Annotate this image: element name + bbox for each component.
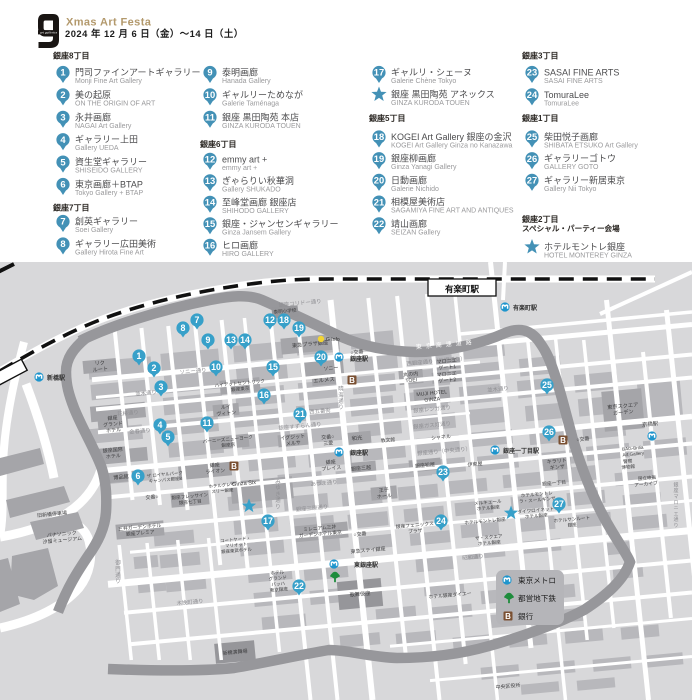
svg-text:東銀座駅: 東銀座駅 — [354, 561, 379, 569]
svg-text:Gallery Nii Tokyo: Gallery Nii Tokyo — [544, 186, 596, 193]
svg-text:り: り — [115, 578, 120, 585]
svg-text:SAGAMIYA FINE ART AND ANTIQUES: SAGAMIYA FINE ART AND ANTIQUES — [391, 208, 514, 215]
svg-text:5: 5 — [166, 432, 171, 442]
svg-text:1: 1 — [60, 67, 65, 78]
svg-text:23: 23 — [438, 467, 448, 477]
svg-text:Soei Gallery: Soei Gallery — [75, 227, 114, 234]
svg-text:銀座5丁目: 銀座5丁目 — [368, 113, 405, 123]
svg-text:ぎゃらりい秋華洞: ぎゃらりい秋華洞 — [222, 175, 294, 186]
svg-text:り: り — [275, 503, 280, 510]
svg-text:26: 26 — [544, 427, 554, 437]
svg-text:emmy art +: emmy art + — [222, 165, 257, 172]
svg-text:SHIHODO GALLERY: SHIHODO GALLERY — [222, 208, 289, 215]
svg-text:22: 22 — [374, 218, 384, 229]
svg-text:B: B — [560, 436, 566, 445]
svg-text:都営地下鉄: 都営地下鉄 — [518, 593, 556, 603]
svg-text:G Info: G Info — [326, 337, 340, 343]
svg-text:KOGEI Art Gallery 銀座の金沢: KOGEI Art Gallery 銀座の金沢 — [391, 131, 512, 142]
svg-text:12: 12 — [265, 315, 275, 325]
svg-text:HOTEL MONTEREY GINZA: HOTEL MONTEREY GINZA — [544, 253, 632, 260]
svg-text:10: 10 — [205, 89, 215, 100]
svg-text:通: 通 — [115, 571, 121, 579]
svg-text:GALLERY GOTO: GALLERY GOTO — [544, 164, 599, 171]
svg-text:門: 門 — [115, 566, 120, 573]
svg-text:み: み — [275, 479, 281, 486]
svg-text:17: 17 — [263, 516, 273, 526]
svg-text:14: 14 — [240, 335, 250, 345]
svg-text:KOGEI Art Gallery Ginza no Kan: KOGEI Art Gallery Ginza no Kanazawa — [391, 143, 512, 150]
svg-text:泰明画廊: 泰明画廊 — [222, 67, 258, 78]
svg-text:art galleries: art galleries — [40, 31, 58, 35]
svg-text:27: 27 — [527, 175, 537, 186]
svg-text:Monji Fine Art Gallery: Monji Fine Art Gallery — [75, 78, 142, 85]
svg-text:4: 4 — [158, 420, 163, 430]
svg-text:19: 19 — [294, 323, 304, 333]
svg-text:新橋駅: 新橋駅 — [47, 374, 66, 382]
svg-text:創英ギャラリー: 創英ギャラリー — [75, 216, 138, 227]
svg-text:TomuraLee: TomuraLee — [544, 90, 589, 100]
svg-text:4: 4 — [60, 134, 66, 145]
svg-text:銀座7丁目: 銀座7丁目 — [52, 203, 89, 213]
svg-text:25: 25 — [542, 380, 552, 390]
svg-text:銀座駅: 銀座駅 — [350, 355, 369, 363]
svg-text:Tokyo Gallery + BTAP: Tokyo Gallery + BTAP — [75, 190, 143, 197]
svg-text:12: 12 — [205, 154, 215, 165]
svg-text:Ginza Yanagi Gallery: Ginza Yanagi Gallery — [391, 164, 457, 171]
svg-text:B: B — [349, 376, 355, 385]
svg-text:ギャラリーゴトウ: ギャラリーゴトウ — [544, 153, 616, 164]
svg-text:銀座3丁目: 銀座3丁目 — [521, 51, 558, 61]
svg-text:11: 11 — [202, 418, 211, 428]
svg-text:門司ファインアートギャラリー: 門司ファインアートギャラリー — [75, 68, 200, 78]
svg-text:TOEI: TOEI — [405, 377, 417, 384]
svg-text:21: 21 — [374, 196, 384, 207]
svg-text:HIRO GALLERY: HIRO GALLERY — [222, 251, 274, 258]
svg-text:銀座6丁目: 銀座6丁目 — [199, 139, 236, 149]
svg-text:8: 8 — [181, 323, 186, 333]
svg-text:13: 13 — [226, 335, 236, 345]
svg-text:20: 20 — [316, 352, 326, 362]
svg-text:銀座1丁目: 銀座1丁目 — [521, 113, 558, 123]
svg-text:SASAI FINE ARTS: SASAI FINE ARTS — [544, 68, 619, 78]
svg-text:6: 6 — [136, 471, 141, 481]
svg-text:27: 27 — [554, 499, 564, 509]
svg-text:3: 3 — [159, 382, 164, 392]
svg-text:至峰堂画廊 銀座店: 至峰堂画廊 銀座店 — [222, 196, 297, 207]
svg-text:銀座駅: 銀座駅 — [350, 449, 369, 457]
svg-text:GINZA KURODA TOUEN: GINZA KURODA TOUEN — [222, 123, 301, 130]
svg-text:銀座 黒田陶苑 本店: 銀座 黒田陶苑 本店 — [222, 111, 299, 122]
svg-text:ギャラリー上田: ギャラリー上田 — [75, 135, 138, 145]
svg-text:SHIBATA ETSUKO Art Gallery: SHIBATA ETSUKO Art Gallery — [544, 143, 638, 150]
svg-text:ホテルモントレ銀座: ホテルモントレ銀座 — [544, 241, 625, 252]
svg-text:2: 2 — [60, 89, 65, 100]
svg-text:6: 6 — [60, 179, 65, 190]
svg-text:通: 通 — [275, 496, 281, 504]
svg-text:7: 7 — [195, 315, 200, 325]
svg-text:16: 16 — [205, 240, 215, 251]
svg-text:有楽町駅: 有楽町駅 — [513, 304, 538, 312]
svg-text:○交番: ○交番 — [353, 530, 367, 538]
svg-text:Gallery Hirota Fine Art: Gallery Hirota Fine Art — [75, 250, 144, 257]
svg-text:7: 7 — [60, 216, 65, 227]
svg-text:15: 15 — [205, 218, 215, 229]
svg-text:10: 10 — [211, 362, 221, 372]
svg-text:22: 22 — [294, 581, 304, 591]
svg-text:2: 2 — [152, 363, 157, 373]
svg-text:交番○: 交番○ — [145, 493, 159, 501]
svg-text:東京メトロ: 東京メトロ — [518, 575, 556, 585]
svg-text:24: 24 — [527, 89, 538, 100]
svg-text:11: 11 — [205, 112, 215, 123]
svg-text:8: 8 — [60, 238, 65, 249]
svg-text:B: B — [231, 462, 237, 471]
svg-text:永井画廊: 永井画廊 — [75, 111, 111, 122]
svg-text:9: 9 — [206, 335, 211, 345]
svg-text:20: 20 — [374, 175, 384, 186]
svg-text:き: き — [275, 491, 280, 498]
svg-text:14: 14 — [205, 197, 216, 208]
svg-text:海: 海 — [338, 391, 344, 399]
svg-text:り: り — [338, 404, 343, 411]
svg-text:銀座一丁目駅: 銀座一丁目駅 — [503, 447, 540, 455]
svg-text:柴田悦子画廊: 柴田悦子画廊 — [544, 131, 598, 142]
svg-text:19: 19 — [374, 153, 384, 164]
svg-text:銀座・ジャンセンギャラリー: 銀座・ジャンセンギャラリー — [222, 218, 339, 229]
svg-text:スペシャル・パーティー会場: スペシャル・パーティー会場 — [522, 223, 620, 233]
svg-text:御: 御 — [115, 559, 121, 567]
svg-text:Hanada Gallery: Hanada Gallery — [222, 78, 271, 85]
svg-text:13: 13 — [205, 175, 215, 186]
svg-text:15: 15 — [268, 362, 278, 372]
svg-text:B: B — [505, 612, 511, 621]
svg-text:Gallery UEDA: Gallery UEDA — [75, 145, 119, 152]
svg-text:emmy art +: emmy art + — [222, 154, 267, 164]
svg-text:相模屋美術店: 相模屋美術店 — [391, 196, 445, 207]
svg-text:21: 21 — [295, 409, 305, 419]
svg-text:ヒロ画廊: ヒロ画廊 — [222, 239, 258, 250]
svg-text:16: 16 — [259, 390, 269, 400]
svg-text:24: 24 — [436, 516, 446, 526]
svg-text:5: 5 — [60, 156, 65, 167]
svg-text:銀座8丁目: 銀座8丁目 — [52, 51, 89, 61]
svg-text:9: 9 — [207, 67, 212, 78]
svg-text:ゆ: ゆ — [275, 485, 280, 492]
svg-text:3: 3 — [60, 112, 65, 123]
svg-text:SHISEIDO GALLERY: SHISEIDO GALLERY — [75, 168, 143, 175]
svg-text:銀座2丁目: 銀座2丁目 — [521, 214, 558, 224]
svg-text:23: 23 — [527, 67, 537, 78]
svg-text:Galerie Chène Tokyo: Galerie Chène Tokyo — [391, 78, 456, 85]
svg-text:Galerie Taménaga: Galerie Taménaga — [222, 100, 279, 107]
svg-text:1: 1 — [137, 351, 142, 361]
svg-text:り: り — [673, 523, 678, 529]
svg-text:25: 25 — [527, 131, 537, 142]
svg-text:三愛: 三愛 — [323, 439, 334, 447]
svg-text:GINZA KURODA TOUEN: GINZA KURODA TOUEN — [391, 100, 470, 107]
svg-text:NAGAI Art Gallery: NAGAI Art Gallery — [75, 123, 132, 130]
svg-text:靖山画廊: 靖山画廊 — [391, 218, 427, 229]
svg-text:ギャラリー新居東京: ギャラリー新居東京 — [544, 174, 625, 185]
svg-text:2024 年 12 月 6 日（金）～14 日（土）: 2024 年 12 月 6 日（金）～14 日（土） — [65, 28, 244, 39]
svg-text:東京画廊＋BTAP: 東京画廊＋BTAP — [75, 179, 143, 190]
svg-text:ギャルリ・シェーヌ: ギャルリ・シェーヌ — [391, 68, 472, 78]
svg-text:晴: 晴 — [338, 385, 344, 393]
svg-text:17: 17 — [374, 67, 384, 78]
svg-text:ギャルリーためなが: ギャルリーためなが — [222, 89, 303, 100]
svg-text:Ginza Jansem Gallery: Ginza Jansem Gallery — [222, 229, 291, 236]
svg-text:資生堂ギャラリー: 資生堂ギャラリー — [75, 156, 147, 167]
svg-text:有楽町駅: 有楽町駅 — [445, 284, 480, 294]
svg-text:Galerie Nichido: Galerie Nichido — [391, 186, 439, 193]
svg-text:通: 通 — [338, 397, 344, 405]
svg-text:26: 26 — [527, 153, 537, 164]
svg-text:SASAI FINE ARTS: SASAI FINE ARTS — [544, 78, 603, 85]
svg-text:18: 18 — [374, 131, 384, 142]
svg-text:SEIZAN Gallery: SEIZAN Gallery — [391, 229, 441, 236]
svg-text:○交番: ○交番 — [576, 435, 590, 443]
svg-text:○交番: ○交番 — [350, 348, 364, 356]
svg-text:Gallery SHUKADO: Gallery SHUKADO — [222, 186, 281, 193]
svg-text:銀座 黒田陶苑 アネックス: 銀座 黒田陶苑 アネックス — [391, 89, 495, 100]
svg-text:伊東屋: 伊東屋 — [467, 460, 483, 468]
svg-text:銀座柳画廊: 銀座柳画廊 — [391, 153, 436, 164]
svg-text:Xmas Art Festa: Xmas Art Festa — [66, 17, 152, 29]
svg-text:ON THE ORIGIN OF ART: ON THE ORIGIN OF ART — [75, 100, 156, 107]
svg-text:美の起原: 美の起原 — [75, 89, 111, 100]
svg-text:TomuraLee: TomuraLee — [544, 100, 579, 107]
svg-text:日動画廊: 日動画廊 — [391, 174, 427, 185]
svg-text:ギャラリー広田美術: ギャラリー広田美術 — [75, 238, 156, 249]
svg-text:18: 18 — [279, 315, 289, 325]
svg-text:銀行: 銀行 — [518, 611, 534, 621]
